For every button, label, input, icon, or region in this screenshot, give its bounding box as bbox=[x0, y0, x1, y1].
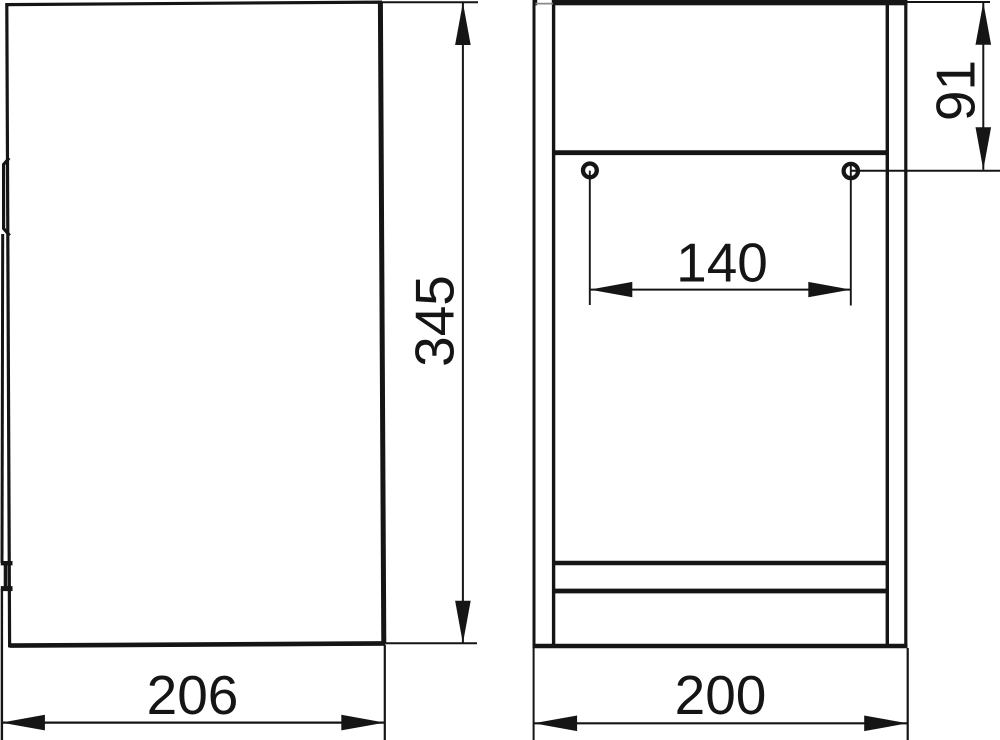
svg-text:345: 345 bbox=[404, 275, 466, 367]
svg-text:206: 206 bbox=[147, 664, 239, 726]
svg-text:91: 91 bbox=[925, 60, 987, 121]
svg-text:200: 200 bbox=[675, 664, 767, 726]
svg-text:140: 140 bbox=[676, 232, 768, 294]
